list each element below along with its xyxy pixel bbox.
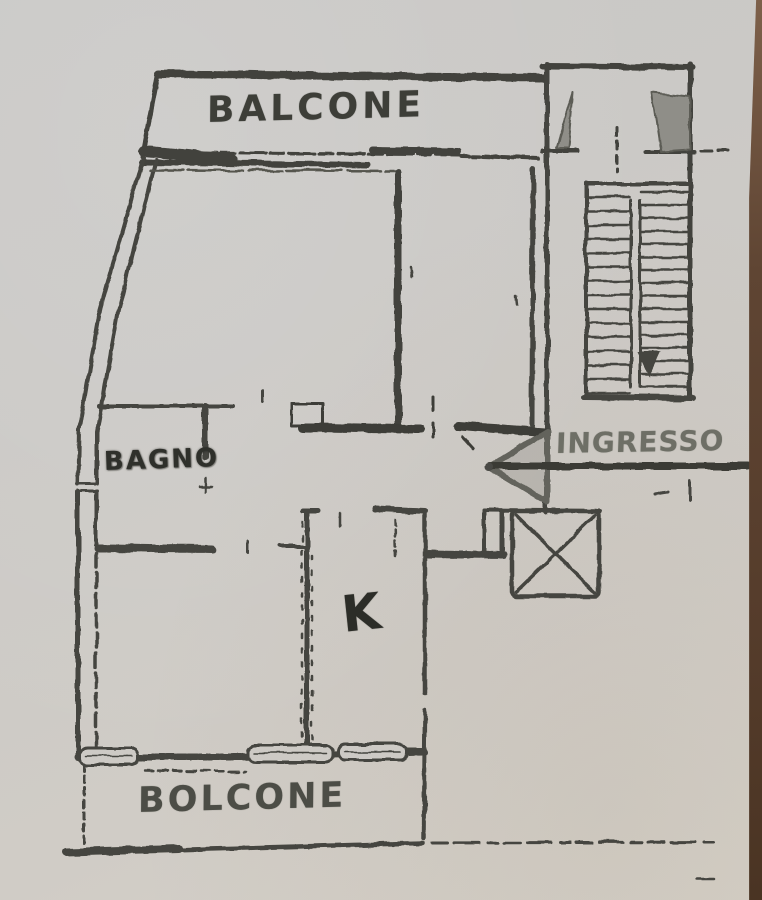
label-entrance: INGRESSO — [555, 424, 725, 460]
staircase — [584, 183, 693, 398]
room-top-wall-line — [150, 170, 398, 171]
floor-plan-photo: BALCONE BAGNO INGRESSO K BOLCONE — [0, 0, 762, 900]
label-kitchen: K — [339, 582, 384, 644]
stair-steps-left — [586, 197, 630, 393]
stairwell-left-double-wall — [532, 64, 547, 432]
living-room-walls — [248, 541, 305, 553]
hallway-walls — [292, 396, 545, 449]
label-bathroom: BAGNO — [103, 443, 219, 477]
misc-marks — [410, 266, 713, 879]
label-balcony-top: BALCONE — [207, 84, 425, 131]
bottom-wall-windows — [78, 744, 425, 772]
elevator-block — [428, 498, 600, 596]
label-balcony-bottom: BOLCONE — [138, 776, 347, 821]
landing-shaded-areas — [556, 92, 690, 152]
boundary-dashes — [432, 842, 718, 843]
